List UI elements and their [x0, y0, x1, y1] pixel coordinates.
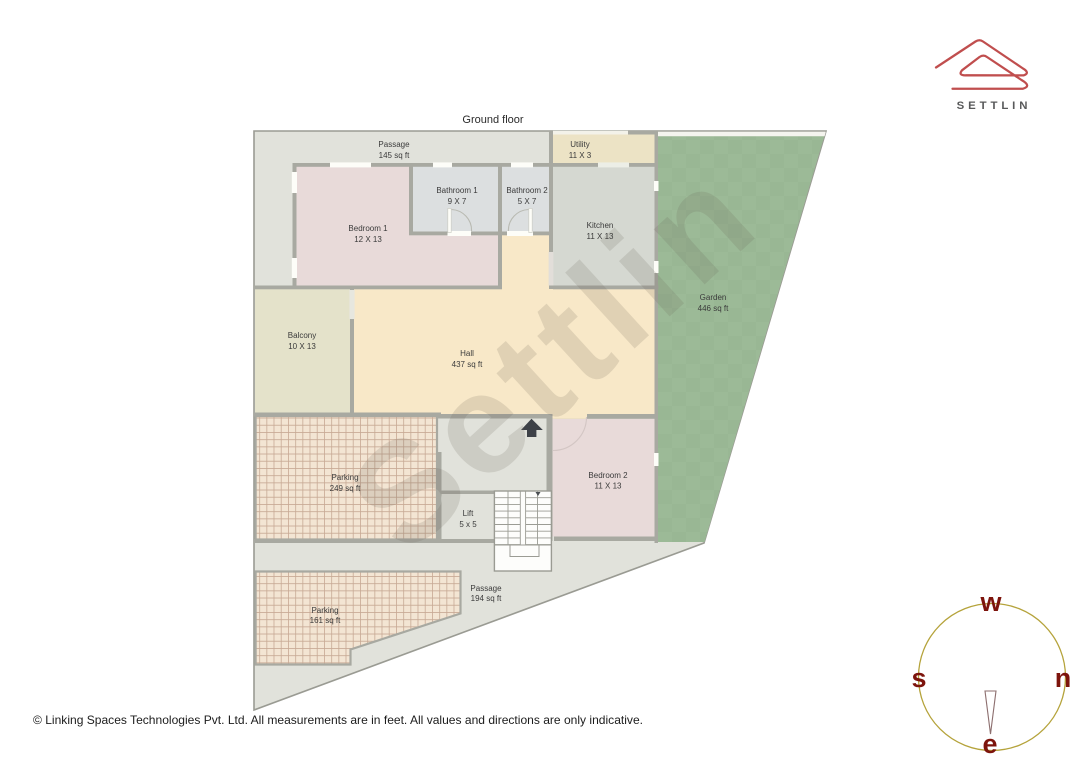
- svg-text:Garden: Garden: [700, 293, 727, 302]
- svg-text:9 X 7: 9 X 7: [448, 197, 467, 206]
- svg-text:11 X 13: 11 X 13: [587, 232, 615, 241]
- svg-text:Bathroom 2: Bathroom 2: [506, 186, 548, 195]
- svg-text:194 sq ft: 194 sq ft: [471, 594, 502, 603]
- svg-text:10 X 13: 10 X 13: [288, 342, 316, 351]
- svg-text:5 X 7: 5 X 7: [518, 197, 537, 206]
- svg-text:249 sq ft: 249 sq ft: [330, 484, 361, 493]
- svg-text:145 sq ft: 145 sq ft: [379, 151, 410, 160]
- svg-text:Lift: Lift: [463, 509, 474, 518]
- svg-text:11 X 3: 11 X 3: [569, 151, 592, 160]
- svg-text:437 sq ft: 437 sq ft: [452, 360, 483, 369]
- svg-text:Utility: Utility: [570, 140, 590, 149]
- svg-text:11 X 13: 11 X 13: [595, 482, 623, 491]
- svg-text:Bedroom 1: Bedroom 1: [348, 224, 388, 233]
- svg-text:s: s: [911, 663, 926, 693]
- svg-text:Hall: Hall: [460, 349, 474, 358]
- svg-text:161 sq ft: 161 sq ft: [310, 616, 341, 625]
- svg-text:n: n: [1055, 663, 1072, 693]
- svg-text:Bedroom 2: Bedroom 2: [588, 471, 628, 480]
- svg-text:Balcony: Balcony: [288, 331, 316, 340]
- svg-text:446 sq ft: 446 sq ft: [698, 304, 729, 313]
- svg-text:Parking: Parking: [311, 606, 338, 615]
- svg-text:Ground floor: Ground floor: [462, 114, 523, 126]
- svg-text:Passage: Passage: [470, 584, 502, 593]
- svg-text:SETTLIN: SETTLIN: [957, 100, 1032, 112]
- svg-text:Bathroom 1: Bathroom 1: [436, 186, 478, 195]
- svg-text:12 X 13: 12 X 13: [354, 235, 382, 244]
- svg-text:Kitchen: Kitchen: [587, 221, 614, 230]
- svg-text:© Linking Spaces Technologies: © Linking Spaces Technologies Pvt. Ltd. …: [33, 713, 643, 727]
- svg-text:Parking: Parking: [331, 473, 358, 482]
- svg-text:Passage: Passage: [378, 140, 410, 149]
- svg-text:5 x 5: 5 x 5: [459, 520, 477, 529]
- svg-text:w: w: [979, 587, 1002, 617]
